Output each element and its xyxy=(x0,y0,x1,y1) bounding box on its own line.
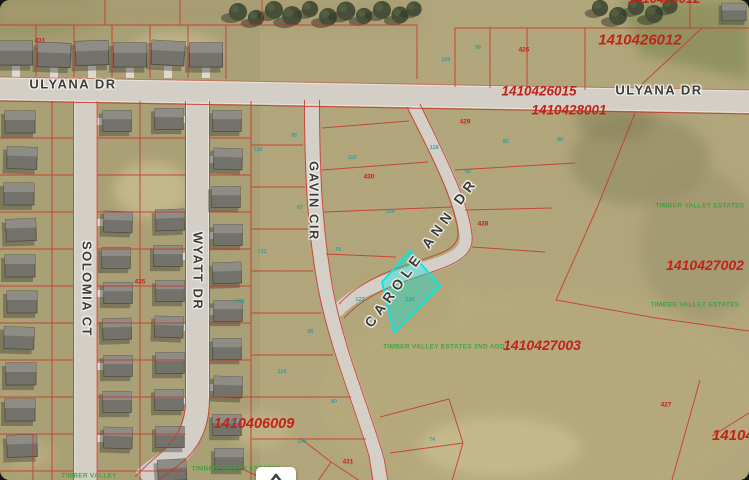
chevron-up-icon xyxy=(267,472,285,480)
map-control-button[interactable] xyxy=(256,467,296,480)
parcel-map-viewport[interactable]: ULYANA DRULYANA DRSOLOMIA CTWYATT DRGAVI… xyxy=(0,0,749,480)
aerial-basemap xyxy=(0,0,749,480)
